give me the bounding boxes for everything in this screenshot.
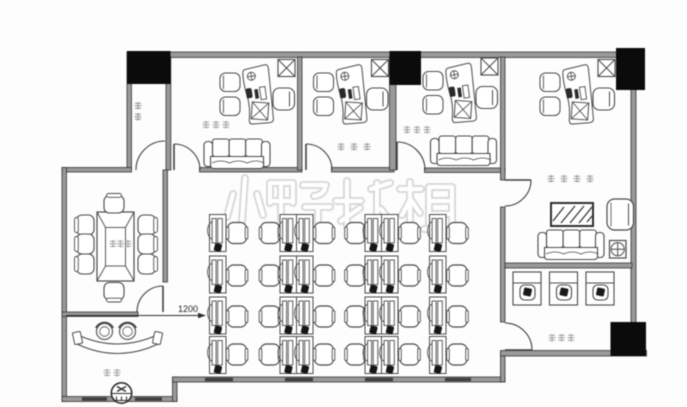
svg-text:1200: 1200 [178, 304, 198, 314]
